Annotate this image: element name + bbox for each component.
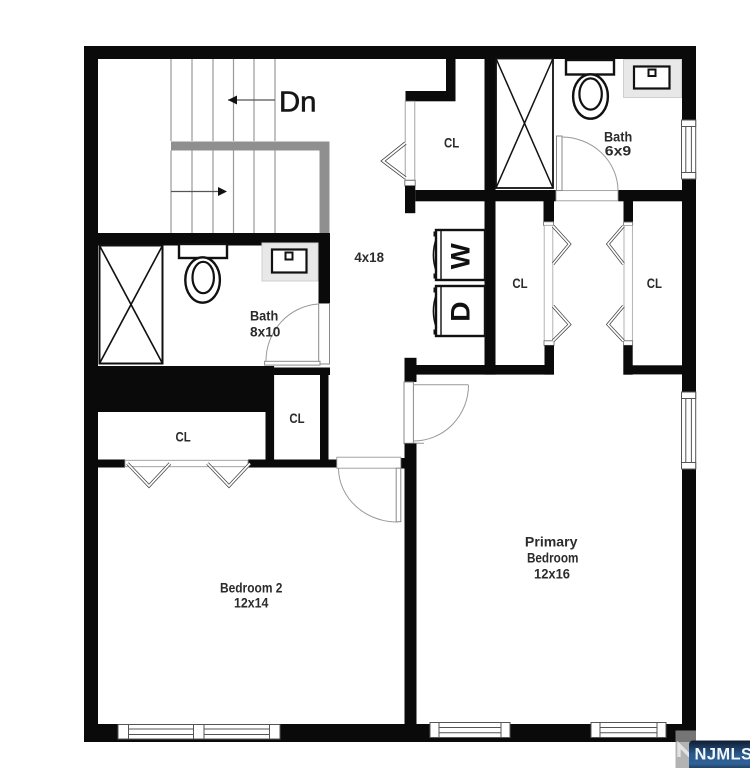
svg-text:Primary: Primary xyxy=(525,534,578,550)
svg-text:CL: CL xyxy=(444,135,460,151)
svg-text:Bath: Bath xyxy=(250,308,278,324)
svg-text:12x16: 12x16 xyxy=(534,566,570,582)
svg-text:Bedroom 2: Bedroom 2 xyxy=(220,579,283,595)
svg-text:Bedroom: Bedroom xyxy=(527,550,579,566)
svg-text:12x14: 12x14 xyxy=(234,594,269,610)
svg-text:CL: CL xyxy=(512,275,528,291)
svg-text:Dn: Dn xyxy=(279,86,317,118)
svg-text:8x10: 8x10 xyxy=(250,323,281,339)
svg-text:D: D xyxy=(445,302,475,322)
svg-text:CL: CL xyxy=(289,410,305,426)
svg-text:CL: CL xyxy=(176,429,192,445)
svg-text:CL: CL xyxy=(647,275,663,291)
svg-text:NJMLS: NJMLS xyxy=(695,746,750,764)
svg-text:6x9: 6x9 xyxy=(605,143,632,159)
svg-text:4x18: 4x18 xyxy=(354,249,384,265)
svg-text:W: W xyxy=(445,243,475,269)
